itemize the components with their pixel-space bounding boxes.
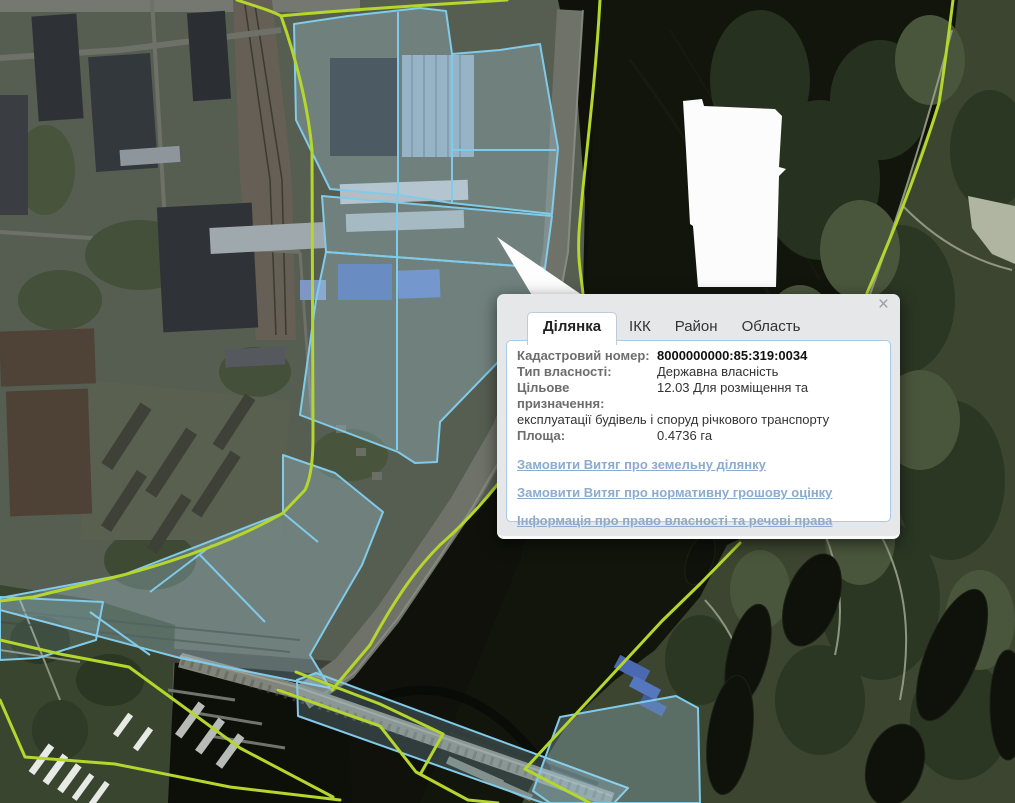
field-area: Площа:0.4736 га <box>517 428 880 444</box>
close-icon[interactable]: × <box>878 295 889 314</box>
order-extract-monetary-valuation-link[interactable]: Замовити Витяг про нормативну грошову оц… <box>517 485 880 501</box>
field-ownership-type: Тип власності:Державна власність <box>517 364 880 380</box>
tab-dilyanka[interactable]: Ділянка <box>527 312 617 345</box>
tab-oblast[interactable]: Область <box>730 313 813 343</box>
cadastral-map-viewer: × Ділянка ІКК Район Область Кадастровий … <box>0 0 1015 803</box>
order-extract-land-parcel-link[interactable]: Замовити Витяг про земельну ділянку <box>517 457 880 473</box>
parcel-info-popup: × Ділянка ІКК Район Область Кадастровий … <box>497 294 900 539</box>
tab-ikk[interactable]: ІКК <box>617 313 663 343</box>
ownership-type-value: Державна власність <box>657 364 778 379</box>
popup-tabs: Ділянка ІКК Район Область <box>527 312 812 343</box>
tab-rayon[interactable]: Район <box>663 313 730 343</box>
parcel-details-panel: Кадастровий номер:8000000000:85:319:0034… <box>506 340 891 522</box>
field-designated-purpose: Цільове призначення:12.03 Для розміщення… <box>517 380 880 428</box>
masked-area <box>683 99 786 287</box>
popup-links: Замовити Витяг про земельну ділянку Замо… <box>517 457 880 529</box>
field-cadastral-number: Кадастровий номер:8000000000:85:319:0034 <box>517 348 880 364</box>
cadastral-number-value: 8000000000:85:319:0034 <box>657 348 807 363</box>
area-value: 0.4736 га <box>657 428 712 443</box>
ownership-rights-info-link[interactable]: Інформація про право власності та речові… <box>517 513 880 529</box>
